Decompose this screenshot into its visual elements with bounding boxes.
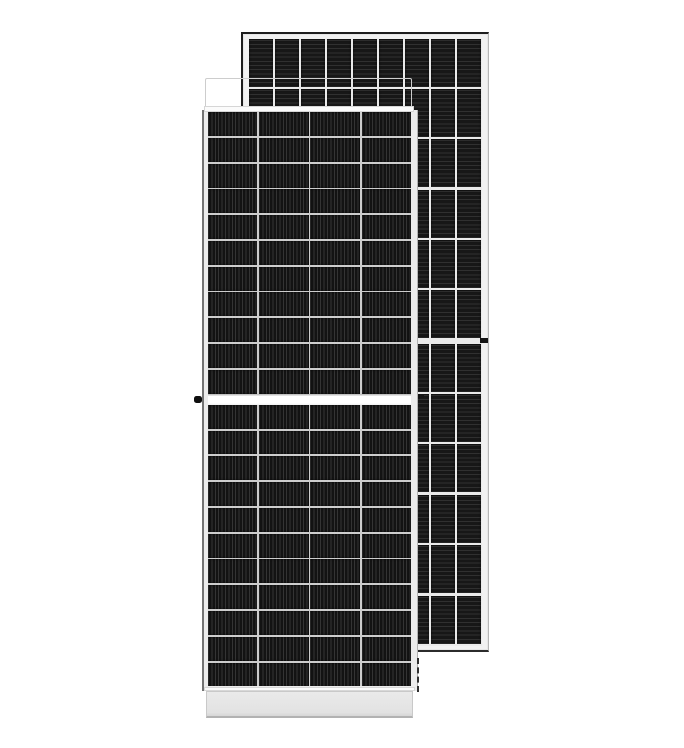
cell-row — [208, 508, 411, 532]
solar-cell — [259, 215, 308, 239]
solar-cell — [362, 318, 411, 342]
solar-cell — [431, 344, 455, 392]
solar-cell — [310, 534, 359, 558]
solar-cell — [362, 370, 411, 394]
cell-row — [208, 215, 411, 239]
solar-cell — [259, 112, 308, 136]
solar-cell — [259, 189, 308, 213]
solar-cell — [310, 405, 359, 429]
solar-cell — [431, 596, 455, 644]
front-panel-lower-half — [208, 405, 411, 686]
solar-cell — [259, 318, 308, 342]
solar-cell — [208, 456, 257, 480]
solar-cell — [208, 344, 257, 368]
solar-cell — [208, 482, 257, 506]
solar-cell — [431, 394, 455, 442]
solar-cell — [208, 189, 257, 213]
product-photo-scene: Product photo of two overlapping framed … — [0, 0, 684, 748]
solar-cell — [259, 559, 308, 583]
solar-cell — [208, 405, 257, 429]
solar-cell — [208, 215, 257, 239]
solar-cell — [457, 240, 481, 288]
solar-cell — [362, 164, 411, 188]
solar-cell — [259, 431, 308, 455]
solar-cell — [310, 559, 359, 583]
solar-cell — [259, 456, 308, 480]
front-panel-upper-half — [208, 112, 411, 394]
solar-cell — [259, 344, 308, 368]
solar-cell — [431, 139, 455, 187]
solar-cell — [431, 89, 455, 137]
front-panel-bottom-frame-cap — [206, 691, 413, 718]
cell-row — [208, 112, 411, 136]
solar-cell — [208, 663, 257, 686]
solar-cell — [310, 611, 359, 635]
solar-cell — [310, 267, 359, 291]
solar-cell — [362, 508, 411, 532]
solar-cell — [259, 534, 308, 558]
solar-cell — [259, 138, 308, 162]
solar-cell — [457, 39, 481, 87]
solar-cell — [362, 241, 411, 265]
solar-cell — [310, 215, 359, 239]
solar-cell — [208, 267, 257, 291]
solar-cell — [259, 164, 308, 188]
cell-row — [208, 164, 411, 188]
solar-cell — [208, 637, 257, 661]
solar-cell — [259, 482, 308, 506]
grounding-knob — [194, 396, 202, 404]
solar-cell — [431, 190, 455, 238]
front-panel-top-frame-cap — [205, 78, 412, 108]
solar-cell — [208, 292, 257, 316]
solar-cell — [362, 405, 411, 429]
solar-cell — [259, 508, 308, 532]
solar-cell — [457, 190, 481, 238]
solar-cell — [259, 663, 308, 686]
solar-cell — [310, 318, 359, 342]
solar-cell — [310, 189, 359, 213]
solar-cell — [310, 164, 359, 188]
solar-cell — [431, 444, 455, 492]
solar-cell — [310, 585, 359, 609]
solar-cell — [208, 241, 257, 265]
solar-cell — [208, 164, 257, 188]
solar-cell — [457, 344, 481, 392]
cell-row — [208, 456, 411, 480]
solar-cell — [208, 318, 257, 342]
solar-cell — [362, 267, 411, 291]
solar-cell — [208, 138, 257, 162]
cell-row — [208, 292, 411, 316]
scene-description: Product photo of two overlapping framed … — [0, 0, 1, 1]
solar-cell — [431, 290, 455, 338]
solar-cell — [259, 370, 308, 394]
solar-cell — [457, 290, 481, 338]
solar-cell — [259, 637, 308, 661]
cell-row — [208, 370, 411, 394]
solar-cell — [310, 370, 359, 394]
solar-cell — [362, 663, 411, 686]
solar-cell — [310, 292, 359, 316]
cell-row — [208, 344, 411, 368]
front-panel-bottom-glass-lip — [204, 687, 415, 692]
solar-cell — [362, 559, 411, 583]
solar-cell — [310, 241, 359, 265]
solar-cell — [259, 405, 308, 429]
solar-cell — [362, 215, 411, 239]
cell-row — [208, 405, 411, 429]
solar-cell — [310, 138, 359, 162]
solar-cell — [457, 545, 481, 593]
solar-cell — [457, 495, 481, 543]
solar-cell — [310, 508, 359, 532]
solar-cell — [259, 292, 308, 316]
solar-cell — [362, 456, 411, 480]
solar-cell — [362, 189, 411, 213]
solar-cell — [208, 431, 257, 455]
solar-cell — [362, 637, 411, 661]
solar-cell — [208, 611, 257, 635]
solar-cell — [457, 139, 481, 187]
solar-cell — [362, 138, 411, 162]
front-panel-top-glass-lip — [204, 106, 414, 112]
solar-cell — [431, 39, 455, 87]
solar-cell — [310, 344, 359, 368]
solar-cell — [362, 431, 411, 455]
solar-cell — [431, 495, 455, 543]
solar-cell — [208, 559, 257, 583]
cell-row — [208, 637, 411, 661]
solar-cell — [362, 534, 411, 558]
solar-cell — [310, 482, 359, 506]
cell-row — [208, 318, 411, 342]
front-panel-cell-grid — [208, 112, 411, 686]
solar-cell — [362, 112, 411, 136]
solar-cell — [208, 370, 257, 394]
cell-row — [208, 534, 411, 558]
cell-row — [208, 138, 411, 162]
solar-cell — [310, 637, 359, 661]
solar-cell — [208, 534, 257, 558]
solar-cell — [310, 456, 359, 480]
front-solar-panel — [202, 110, 418, 691]
front-panel-center-split — [208, 394, 411, 405]
cell-row — [208, 585, 411, 609]
solar-cell — [208, 508, 257, 532]
solar-cell — [259, 611, 308, 635]
solar-cell — [431, 240, 455, 288]
cell-row — [208, 431, 411, 455]
right-frame-mark — [417, 394, 425, 399]
solar-cell — [310, 663, 359, 686]
solar-cell — [362, 585, 411, 609]
solar-cell — [208, 112, 257, 136]
solar-cell — [310, 431, 359, 455]
solar-cell — [457, 394, 481, 442]
solar-cell — [431, 545, 455, 593]
solar-cell — [208, 585, 257, 609]
solar-cell — [457, 596, 481, 644]
cell-row — [208, 611, 411, 635]
cell-row — [208, 267, 411, 291]
solar-cell — [362, 611, 411, 635]
solar-cell — [362, 292, 411, 316]
solar-cell — [259, 585, 308, 609]
solar-cell — [259, 241, 308, 265]
solar-cell — [362, 344, 411, 368]
cell-row — [208, 482, 411, 506]
rear-frame-clip — [480, 338, 489, 344]
cell-row — [208, 559, 411, 583]
cell-row — [208, 189, 411, 213]
dashed-edge-artifact — [417, 658, 419, 692]
solar-cell — [457, 444, 481, 492]
solar-cell — [362, 482, 411, 506]
solar-cell — [457, 89, 481, 137]
solar-cell — [310, 112, 359, 136]
cell-row — [208, 241, 411, 265]
cell-row — [208, 663, 411, 686]
solar-cell — [259, 267, 308, 291]
